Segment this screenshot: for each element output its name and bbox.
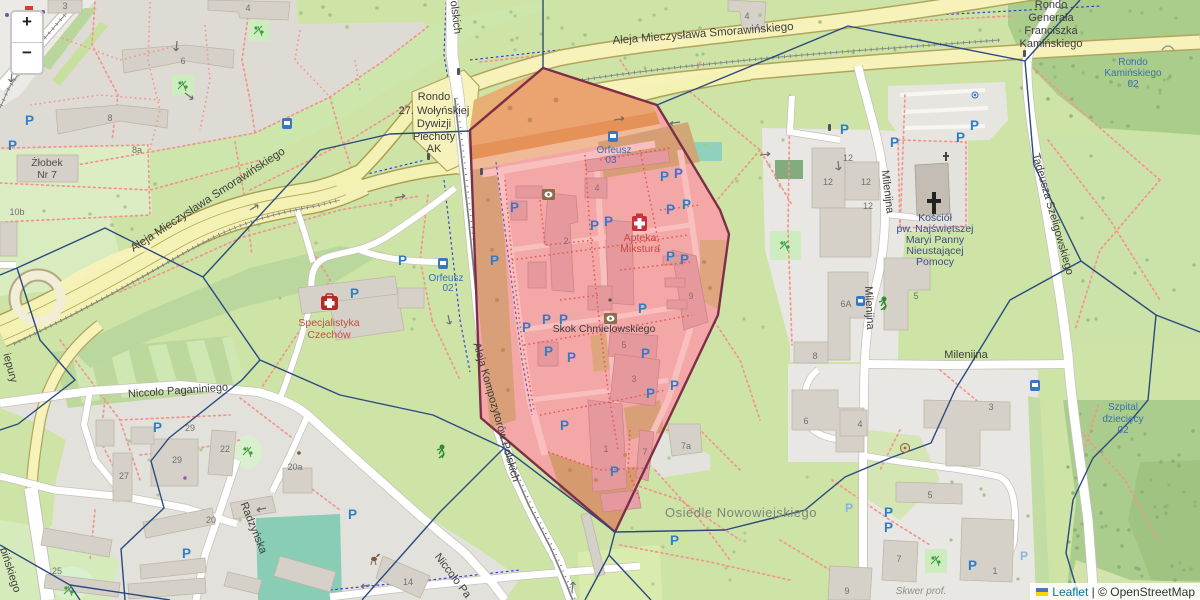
svg-text:Szpital: Szpital (1108, 402, 1138, 413)
svg-text:Czechów: Czechów (307, 329, 351, 341)
svg-text:Dywizji: Dywizji (417, 118, 451, 130)
svg-text:9: 9 (688, 291, 693, 301)
svg-text:Osiedle Nowowiejskiego: Osiedle Nowowiejskiego (665, 505, 817, 520)
svg-text:Kamińskiego: Kamińskiego (1104, 68, 1162, 79)
svg-text:5: 5 (913, 291, 918, 301)
svg-text:29: 29 (172, 455, 182, 465)
svg-text:P: P (638, 301, 647, 316)
svg-text:P: P (666, 202, 675, 217)
svg-text:P: P (522, 320, 531, 335)
svg-text:P: P (544, 344, 553, 359)
svg-text:20a: 20a (287, 462, 302, 472)
svg-text:02: 02 (442, 283, 454, 294)
svg-text:Żłobek: Żłobek (31, 156, 63, 169)
svg-text:dziecięcy: dziecięcy (1102, 414, 1143, 425)
svg-text:P: P (350, 286, 359, 301)
svg-text:3: 3 (62, 1, 67, 11)
svg-text:12: 12 (843, 153, 853, 163)
svg-text:02: 02 (1127, 79, 1139, 90)
svg-text:7: 7 (896, 554, 901, 564)
svg-text:AK: AK (427, 143, 442, 155)
svg-text:P: P (590, 218, 599, 233)
svg-text:P: P (542, 312, 551, 327)
svg-text:8: 8 (107, 113, 112, 123)
svg-text:P: P (8, 138, 17, 153)
svg-text:P: P (510, 200, 519, 215)
svg-text:P: P (890, 135, 899, 150)
svg-text:Kamińskiego: Kamińskiego (1020, 38, 1083, 50)
svg-text:P: P (666, 249, 675, 264)
svg-text:Nr 7: Nr 7 (37, 169, 57, 181)
svg-text:Rondo: Rondo (1035, 0, 1067, 11)
svg-text:4: 4 (744, 11, 749, 21)
svg-text:12: 12 (823, 177, 833, 187)
svg-text:P: P (956, 130, 965, 145)
svg-text:5: 5 (621, 340, 626, 350)
svg-text:Milenijna: Milenijna (944, 349, 988, 361)
svg-text:03: 03 (605, 155, 617, 166)
svg-text:7: 7 (642, 447, 647, 457)
svg-text:2: 2 (563, 236, 568, 246)
svg-text:P: P (680, 252, 689, 267)
svg-text:P: P (884, 520, 893, 535)
svg-text:P: P (682, 197, 691, 212)
svg-text:P: P (670, 378, 679, 393)
svg-text:P: P (970, 118, 979, 133)
svg-text:P: P (560, 418, 569, 433)
svg-text:27: 27 (119, 471, 129, 481)
svg-text:Skwer prof.: Skwer prof. (896, 586, 947, 597)
svg-text:4: 4 (245, 3, 250, 13)
svg-text:27. Wołyńskiej: 27. Wołyńskiej (399, 105, 470, 117)
svg-text:P: P (25, 113, 34, 128)
svg-text:P: P (610, 464, 619, 479)
svg-text:P: P (641, 346, 650, 361)
svg-text:14: 14 (403, 577, 413, 587)
svg-text:Franciszka: Franciszka (1024, 25, 1078, 37)
svg-text:8: 8 (812, 351, 817, 361)
svg-text:9: 9 (844, 586, 849, 596)
svg-text:12: 12 (863, 201, 873, 211)
svg-text:3: 3 (988, 402, 993, 412)
svg-text:P: P (1020, 549, 1028, 563)
svg-text:20: 20 (206, 515, 216, 525)
svg-text:6A: 6A (840, 299, 851, 309)
svg-text:P: P (968, 558, 977, 573)
svg-text:Specjalistyka: Specjalistyka (298, 317, 359, 329)
svg-text:P: P (674, 166, 683, 181)
svg-text:29: 29 (185, 423, 195, 433)
svg-text:12: 12 (861, 177, 871, 187)
svg-text:8a: 8a (132, 145, 142, 155)
svg-text:P: P (604, 214, 613, 229)
svg-text:P: P (398, 253, 407, 268)
svg-text:25: 25 (52, 566, 62, 576)
svg-text:P: P (670, 533, 679, 548)
svg-text:P: P (884, 505, 893, 520)
svg-text:Rondo: Rondo (1118, 57, 1148, 68)
svg-text:1: 1 (992, 566, 997, 576)
svg-text:02: 02 (1117, 425, 1129, 436)
svg-text:Generała: Generała (1028, 12, 1074, 24)
svg-text:P: P (845, 501, 853, 515)
svg-text:Pomocy: Pomocy (916, 256, 955, 268)
svg-text:P: P (182, 546, 191, 561)
svg-text:3: 3 (631, 374, 636, 384)
svg-text:Rondo: Rondo (418, 91, 450, 103)
svg-text:Mikstura: Mikstura (620, 243, 660, 255)
svg-text:P: P (153, 420, 162, 435)
svg-text:Piechoty: Piechoty (413, 131, 456, 143)
svg-text:22: 22 (220, 444, 230, 454)
svg-text:10b: 10b (9, 207, 24, 217)
svg-text:6: 6 (803, 416, 808, 426)
svg-text:6: 6 (180, 56, 185, 66)
svg-text:P: P (348, 507, 357, 522)
svg-text:Milenijna: Milenijna (862, 286, 876, 331)
svg-text:7a: 7a (681, 441, 691, 451)
svg-text:5: 5 (927, 490, 932, 500)
svg-text:1: 1 (603, 444, 608, 454)
svg-text:Skok Chmielowskiego: Skok Chmielowskiego (553, 323, 656, 335)
svg-text:P: P (660, 169, 669, 184)
svg-text:P: P (646, 386, 655, 401)
svg-text:P: P (567, 350, 576, 365)
svg-text:P: P (490, 253, 499, 268)
svg-text:P: P (840, 122, 849, 137)
svg-text:4: 4 (594, 183, 599, 193)
svg-text:4: 4 (857, 419, 862, 429)
